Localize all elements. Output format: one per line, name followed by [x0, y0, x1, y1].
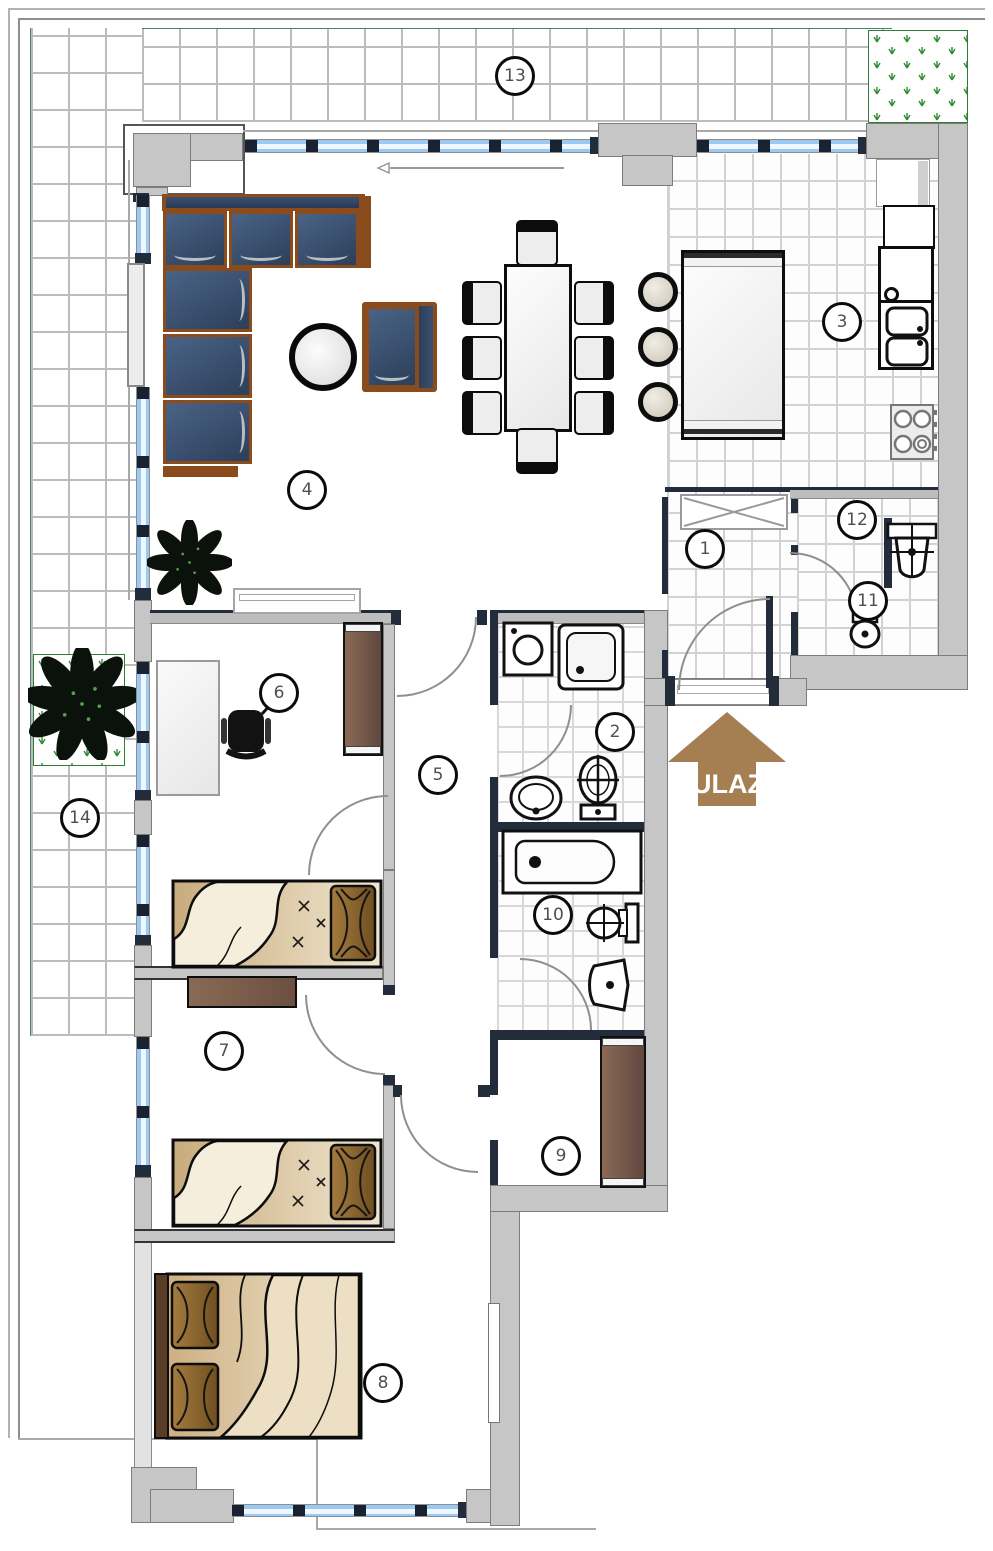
- room-number: 7: [219, 1041, 230, 1061]
- window-post: [590, 137, 598, 154]
- toilet-icon: [586, 901, 642, 945]
- bed-single-icon: [171, 1138, 383, 1228]
- wall-living-hall: [662, 497, 668, 594]
- entrance-arrow-head: [668, 712, 786, 762]
- plant-icon: [28, 648, 136, 760]
- shower-icon: [556, 622, 626, 692]
- door-jamb: [383, 1075, 395, 1085]
- dining-chair: [516, 220, 558, 266]
- entry-closet: [680, 494, 788, 530]
- room-label-13: 13: [495, 56, 535, 96]
- room-label-10: 10: [533, 895, 573, 935]
- dining-chair: [574, 281, 614, 325]
- room-label-12: 12: [837, 500, 877, 540]
- window-left-5: [136, 1037, 150, 1177]
- sofa-armrest: [163, 466, 238, 477]
- wall-pier-left: [134, 945, 152, 1037]
- room-label-5: 5: [418, 755, 458, 795]
- wall-pier-left: [134, 800, 152, 835]
- room-number: 14: [69, 808, 91, 828]
- room-label-1: 1: [685, 529, 725, 569]
- dresser: [187, 976, 297, 1008]
- window-top-right: [697, 139, 866, 153]
- bar-stool: [638, 382, 678, 422]
- sink-icon: [586, 956, 632, 1014]
- sink-icon: [508, 774, 564, 822]
- plant-icon: [147, 520, 232, 605]
- room-number: 8: [378, 1373, 389, 1393]
- window-left-3: [136, 662, 150, 802]
- room-number: 2: [610, 722, 621, 742]
- kitchen-island-cap: [684, 253, 782, 267]
- kitchen-cabinet: [883, 205, 935, 249]
- room-number: 6: [274, 683, 285, 703]
- window-post: [458, 1502, 466, 1518]
- room-label-4: 4: [287, 470, 327, 510]
- room-label-9: 9: [541, 1136, 581, 1176]
- door-jamb: [383, 985, 395, 995]
- washing-machine-icon: [502, 621, 554, 677]
- room-label-6: 6: [259, 673, 299, 713]
- dining-chair: [516, 428, 558, 474]
- sofa-seat: [295, 211, 359, 268]
- wall-niche-bar: [918, 161, 928, 205]
- office-chair-icon: [218, 702, 274, 760]
- door-jamb: [477, 610, 487, 625]
- wall-pier-left: [134, 1177, 152, 1231]
- window-bedroom8: [232, 1504, 466, 1517]
- desk: [156, 660, 220, 796]
- toilet-icon: [576, 754, 620, 822]
- room-label-14: 14: [60, 798, 100, 838]
- wall-room7-corridor: [383, 870, 395, 995]
- window-post: [135, 1165, 151, 1177]
- bathtub-icon: [501, 829, 643, 895]
- armchair-back: [419, 306, 433, 388]
- wardrobe-cap: [602, 1178, 644, 1186]
- wall-wc-bottom: [790, 655, 968, 690]
- wall-right: [938, 123, 968, 665]
- wall-wc-top: [790, 487, 938, 499]
- terrace-top-floor: [30, 28, 892, 122]
- wall-segment: [133, 133, 191, 187]
- wardrobe: [600, 1036, 646, 1188]
- kitchen-sinks-icon: [884, 306, 930, 368]
- counter-divider: [878, 300, 934, 303]
- bar-stool: [638, 327, 678, 367]
- shelf: [233, 588, 361, 614]
- grass-pattern-icon: [869, 31, 967, 122]
- kitchen-island: [681, 250, 785, 440]
- sofa-seat: [163, 334, 252, 398]
- wardrobe-cap: [345, 624, 381, 632]
- sofa-seat: [229, 211, 293, 268]
- room-label-2: 2: [595, 712, 635, 752]
- dining-chair: [574, 336, 614, 380]
- wall-room9-bottom: [490, 1185, 668, 1212]
- north-annotation-arrow-icon: [368, 160, 568, 176]
- wall-pier-stub: [622, 155, 673, 186]
- room-number: 10: [542, 905, 564, 925]
- cooktop-icon: [890, 404, 938, 460]
- sofa-seat: [163, 400, 252, 464]
- room-label-11: 11: [848, 581, 888, 621]
- entrance-label: ULAZ: [691, 769, 765, 800]
- bar-stool: [638, 272, 678, 312]
- window-post: [858, 137, 866, 154]
- wall-pier-top: [598, 123, 697, 157]
- window-left-4: [136, 835, 150, 947]
- sofa-armrest: [359, 196, 371, 268]
- wall-bottom: [150, 1489, 234, 1523]
- room-number: 9: [556, 1146, 567, 1166]
- wall-room9-left: [490, 1140, 498, 1190]
- armchair-cushion: [366, 306, 418, 388]
- wall-bedroom-left: [134, 1229, 152, 1469]
- window-top-left: [245, 139, 598, 153]
- closet-x-icon: [682, 496, 786, 528]
- dining-chair: [462, 391, 502, 435]
- grass-patch-top: [868, 30, 968, 123]
- door-jamb: [665, 676, 675, 706]
- room-number: 12: [846, 510, 868, 530]
- floor-plan: ULAZ: [0, 0, 993, 1551]
- room-label-7: 7: [204, 1031, 244, 1071]
- room-number: 3: [837, 312, 848, 332]
- dining-table: [504, 264, 572, 432]
- wardrobe: [343, 622, 383, 756]
- wall-hall-bath: [490, 612, 498, 705]
- coffee-table: [289, 323, 357, 391]
- wall-hall-bath: [490, 777, 498, 958]
- wall-hall-wc: [791, 499, 798, 513]
- bed-double-icon: [153, 1272, 363, 1440]
- kitchen-island-cap: [684, 420, 782, 434]
- wardrobe-cap: [345, 746, 381, 754]
- plan-border-bottom: [316, 1528, 596, 1530]
- bedroom8-door-niche: [488, 1303, 500, 1423]
- washbasin-icon: [886, 522, 938, 584]
- room-number: 11: [857, 591, 879, 611]
- wall-corridor-left: [383, 1085, 395, 1229]
- dining-chair: [574, 391, 614, 435]
- sofa-corner-seat: [163, 268, 252, 332]
- room-label-3: 3: [822, 302, 862, 342]
- wall-room7-bedroom8: [134, 1229, 395, 1243]
- dining-chair: [462, 281, 502, 325]
- terrace-door-frame: [127, 263, 145, 387]
- room-number: 1: [700, 539, 711, 559]
- dining-chair: [462, 336, 502, 380]
- window-sill-line: [243, 130, 868, 132]
- room-label-8: 8: [363, 1363, 403, 1403]
- wardrobe-cap: [602, 1038, 644, 1046]
- bed-single-icon: [171, 879, 383, 969]
- door-jamb: [478, 1085, 490, 1097]
- armchair: [362, 302, 437, 392]
- sofa-back-cushion: [166, 197, 361, 208]
- room-number: 4: [302, 480, 313, 500]
- sofa-seat: [163, 211, 227, 268]
- shelf-inner-line: [239, 594, 355, 601]
- room-number: 5: [433, 765, 444, 785]
- closet-top-line: [665, 487, 792, 492]
- room-number: 13: [504, 66, 526, 86]
